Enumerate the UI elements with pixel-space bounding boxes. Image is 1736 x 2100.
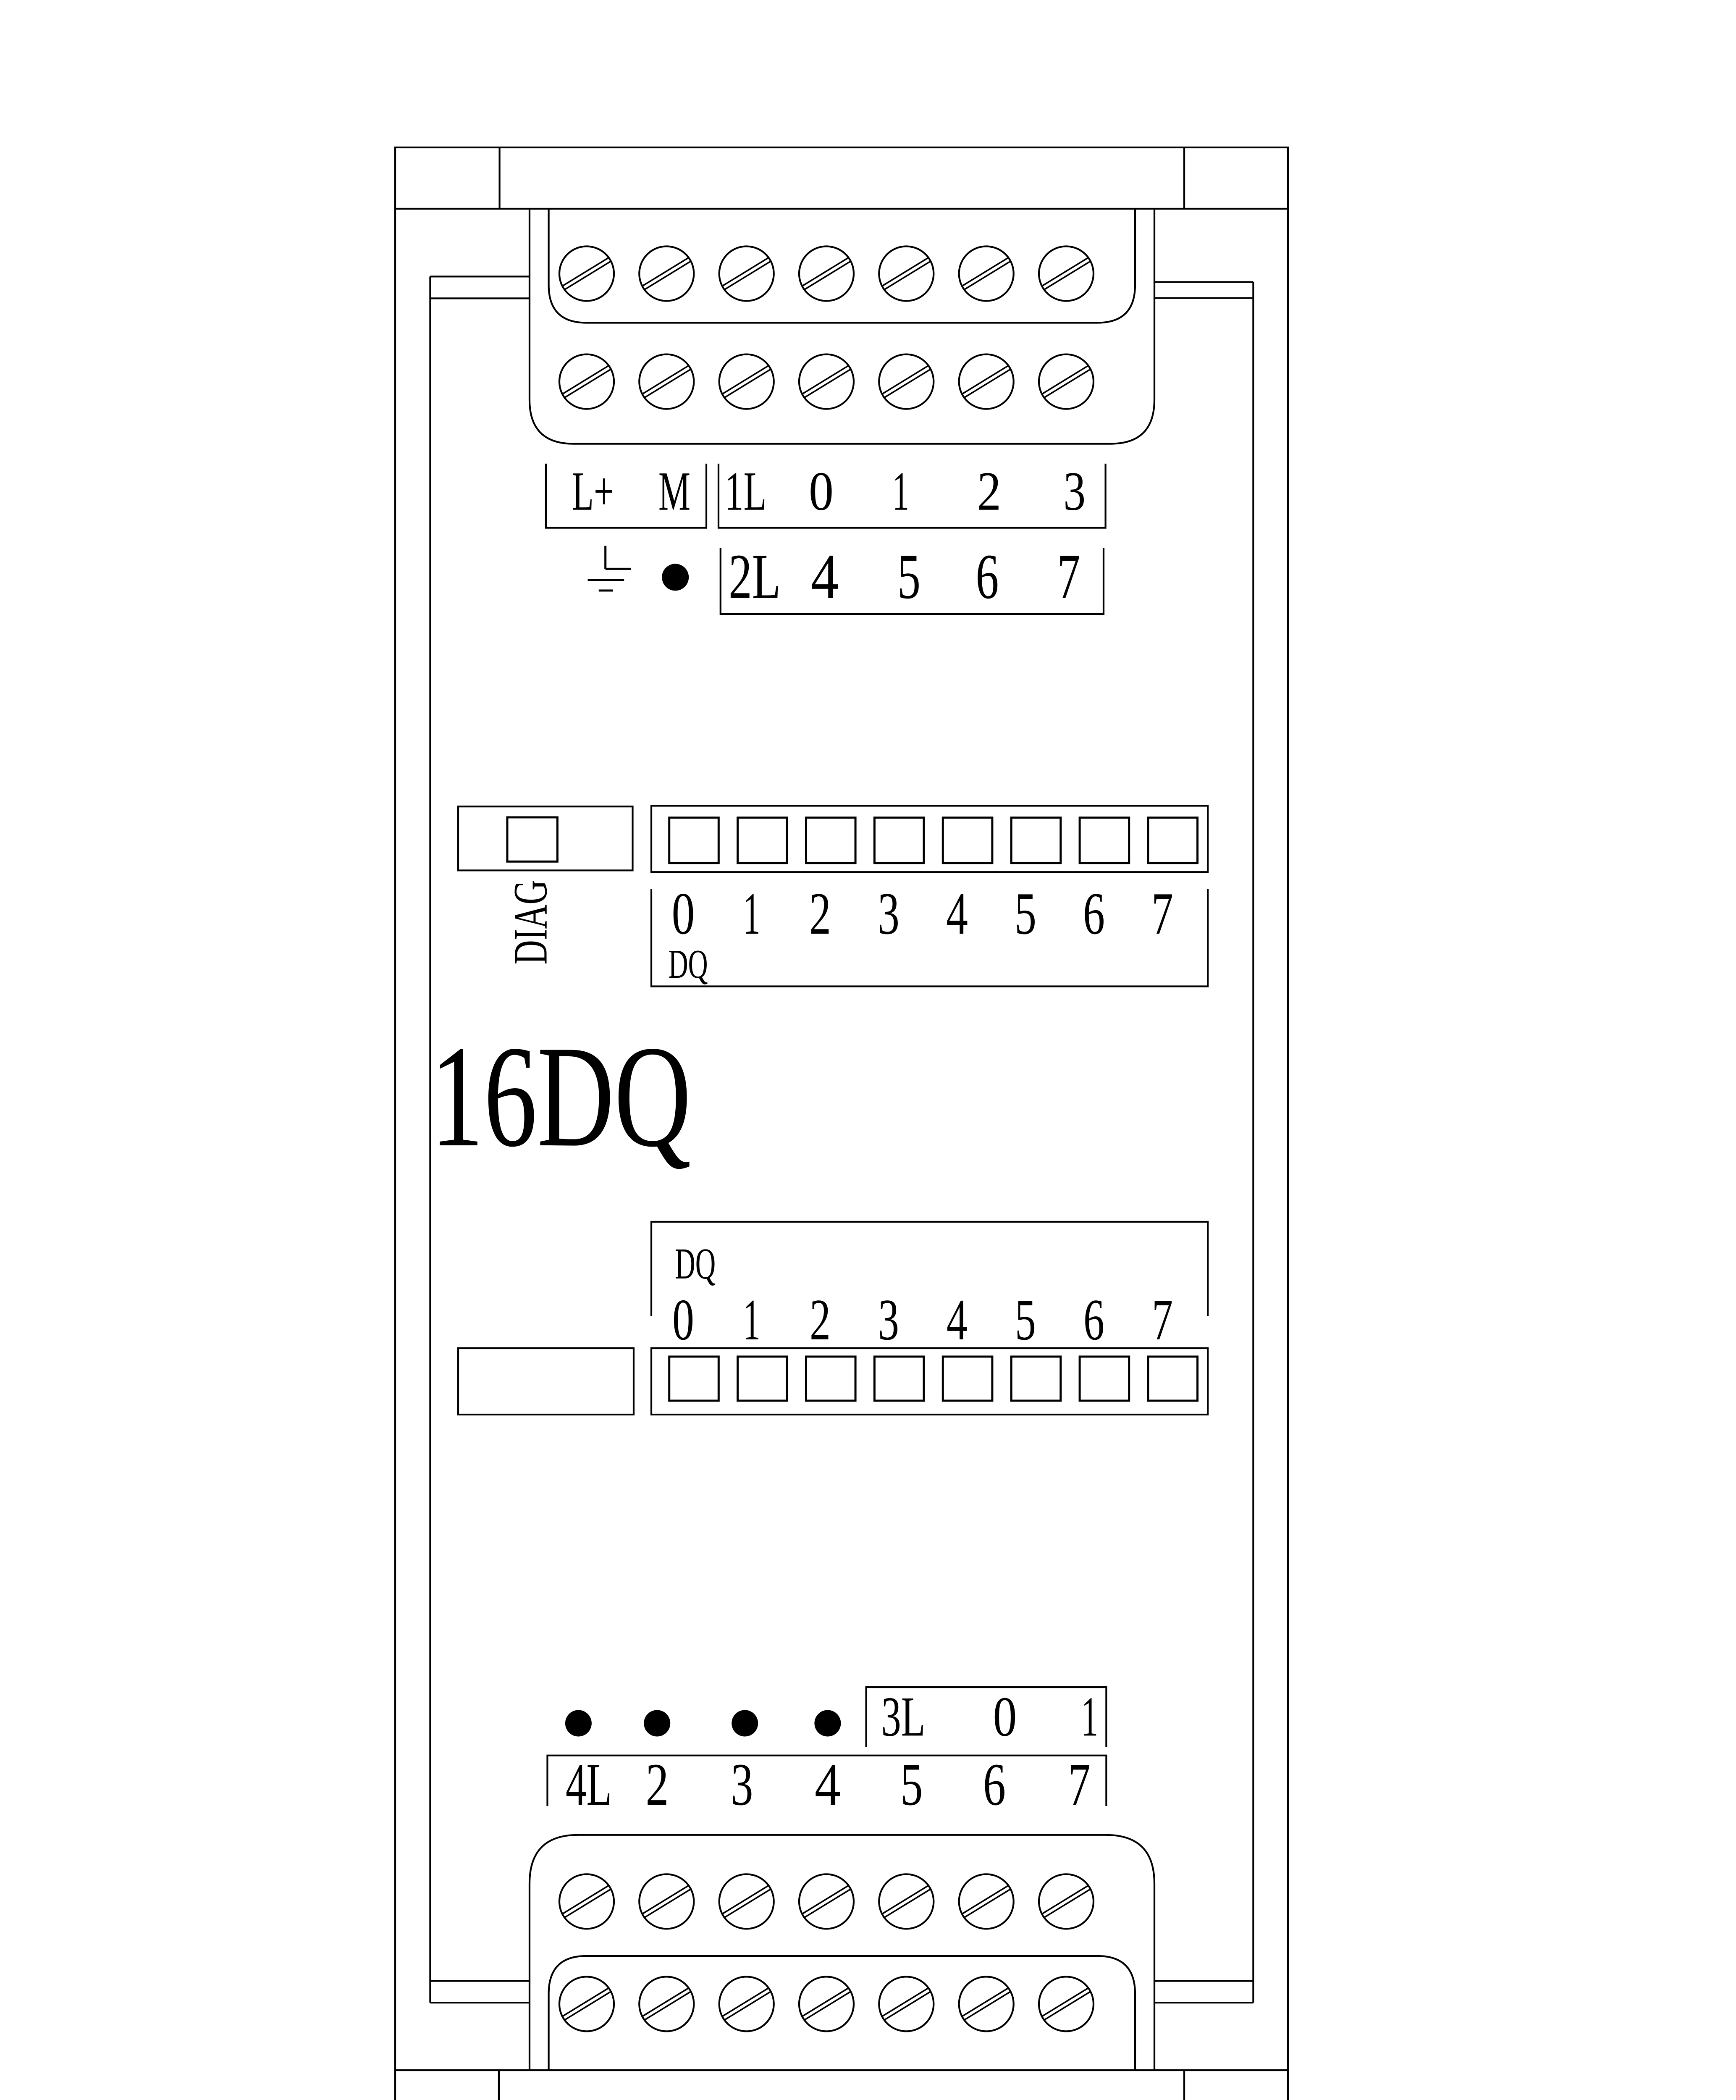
svg-text:3: 3 xyxy=(878,1287,899,1352)
svg-text:0: 0 xyxy=(672,1287,694,1352)
svg-text:6: 6 xyxy=(1083,880,1105,947)
svg-text:5: 5 xyxy=(1015,1287,1036,1352)
svg-text:1: 1 xyxy=(743,880,760,947)
svg-text:4: 4 xyxy=(811,541,839,612)
svg-text:L+: L+ xyxy=(572,460,614,522)
svg-text:6: 6 xyxy=(976,541,999,612)
svg-text:DIAG: DIAG xyxy=(504,880,557,964)
svg-text:16DQ: 16DQ xyxy=(430,1016,691,1177)
svg-text:3: 3 xyxy=(1063,460,1086,522)
svg-text:2: 2 xyxy=(809,880,831,947)
svg-text:0: 0 xyxy=(672,880,695,947)
svg-text:6: 6 xyxy=(1083,1287,1104,1352)
svg-text:2: 2 xyxy=(646,1751,669,1818)
svg-text:5: 5 xyxy=(1015,880,1036,947)
svg-text:2: 2 xyxy=(977,460,1001,522)
svg-text:4: 4 xyxy=(946,880,968,947)
svg-text:4: 4 xyxy=(947,1287,968,1352)
svg-text:7: 7 xyxy=(1057,541,1080,612)
svg-text:2: 2 xyxy=(810,1287,831,1352)
svg-text:2L: 2L xyxy=(729,541,781,612)
svg-text:3: 3 xyxy=(731,1751,753,1818)
svg-text:1: 1 xyxy=(892,460,909,522)
svg-text:5: 5 xyxy=(897,541,920,612)
svg-text:7: 7 xyxy=(1152,1287,1173,1352)
svg-text:DQ: DQ xyxy=(675,1239,716,1288)
svg-text:3: 3 xyxy=(878,880,899,947)
svg-text:5: 5 xyxy=(901,1751,923,1818)
svg-text:6: 6 xyxy=(983,1751,1006,1818)
svg-text:DQ: DQ xyxy=(669,942,708,987)
svg-text:1: 1 xyxy=(743,1287,760,1352)
svg-text:4: 4 xyxy=(815,1751,841,1818)
svg-text:7: 7 xyxy=(1068,1751,1091,1818)
svg-text:M: M xyxy=(658,460,690,522)
svg-text:3L: 3L xyxy=(881,1685,926,1748)
svg-text:7: 7 xyxy=(1151,880,1173,947)
svg-text:1: 1 xyxy=(1081,1685,1098,1748)
svg-text:4L: 4L xyxy=(566,1751,612,1818)
svg-text:0: 0 xyxy=(809,460,834,522)
svg-text:0: 0 xyxy=(993,1685,1017,1748)
svg-text:1L: 1L xyxy=(725,460,767,522)
